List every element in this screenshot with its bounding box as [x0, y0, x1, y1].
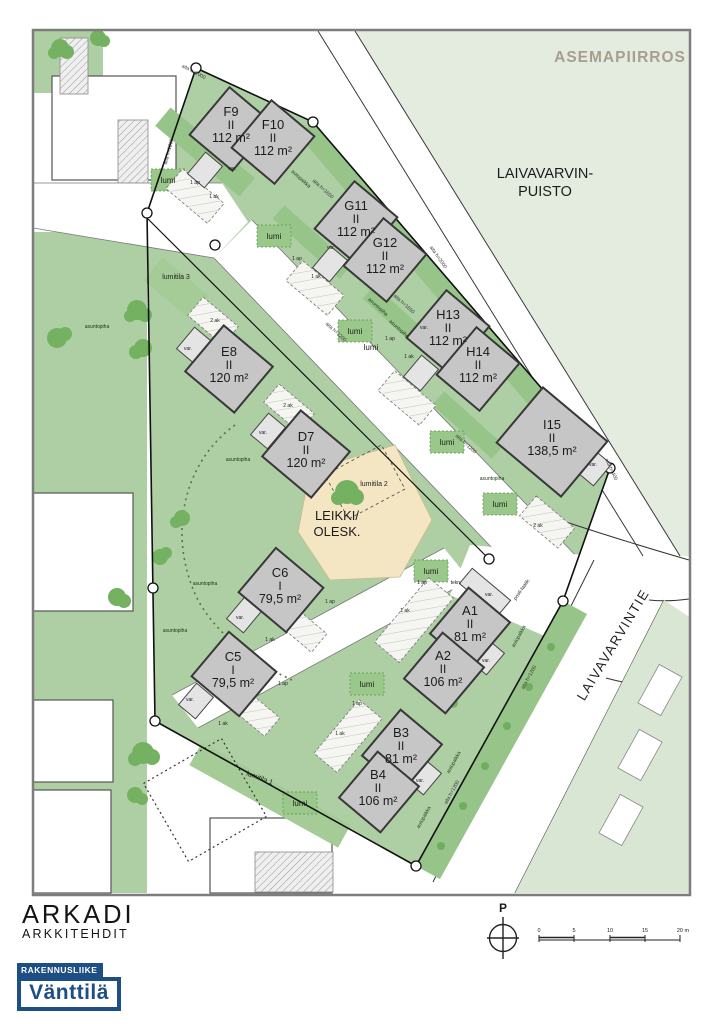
svg-text:79,5 m²: 79,5 m²: [212, 676, 254, 690]
svg-text:1 ak: 1 ak: [218, 721, 228, 727]
svg-text:1 ak: 1 ak: [209, 194, 219, 200]
svg-text:asuntopiha: asuntopiha: [480, 476, 505, 482]
svg-text:1 ap: 1 ap: [190, 180, 200, 186]
svg-text:asuntopiha: asuntopiha: [163, 628, 188, 634]
svg-text:81 m²: 81 m²: [454, 630, 486, 644]
svg-text:II: II: [270, 131, 277, 145]
svg-text:I15: I15: [543, 417, 561, 432]
svg-text:E8: E8: [221, 344, 237, 359]
svg-text:II: II: [303, 443, 310, 457]
svg-text:var.: var.: [259, 430, 267, 436]
architect-subtitle: ARKKITEHDIT: [22, 927, 137, 941]
svg-text:A1: A1: [462, 603, 478, 618]
svg-text:asuntopiha: asuntopiha: [85, 324, 110, 330]
svg-text:1 ak: 1 ak: [311, 274, 321, 280]
svg-text:lumi: lumi: [161, 176, 176, 185]
svg-text:10: 10: [607, 928, 613, 934]
svg-text:H14: H14: [466, 344, 490, 359]
svg-text:2 ak: 2 ak: [210, 318, 220, 324]
svg-text:var.: var.: [327, 245, 335, 251]
architect-name: ARKADI: [22, 901, 135, 927]
architect-logo: ARKADI ARKKITEHDIT: [22, 901, 137, 941]
svg-text:112 m²: 112 m²: [459, 371, 497, 385]
svg-text:106 m²: 106 m²: [359, 794, 398, 808]
svg-text:II: II: [375, 781, 382, 795]
svg-text:lumi: lumi: [348, 327, 363, 336]
svg-text:120 m²: 120 m²: [287, 456, 326, 470]
svg-text:II: II: [398, 739, 405, 753]
svg-text:var.: var.: [482, 658, 490, 664]
svg-text:II: II: [353, 212, 360, 226]
svg-text:5: 5: [572, 928, 575, 934]
north-arrow: P: [487, 901, 519, 959]
svg-text:var.: var.: [186, 697, 194, 703]
svg-text:lumi: lumi: [440, 438, 455, 447]
svg-text:106 m²: 106 m²: [424, 675, 463, 689]
builder-name-box: Vänttilä: [17, 977, 121, 1011]
svg-text:var.: var.: [416, 778, 424, 784]
svg-text:120 m²: 120 m²: [210, 371, 249, 385]
svg-text:II: II: [467, 617, 474, 631]
svg-text:II: II: [549, 431, 556, 445]
svg-text:I: I: [231, 663, 234, 677]
svg-text:var.: var.: [236, 615, 244, 621]
svg-text:B4: B4: [370, 767, 386, 782]
svg-text:112 m²: 112 m²: [212, 131, 250, 145]
svg-text:lumi: lumi: [293, 799, 308, 808]
play-area-label: LEIKKI/ OLESK.: [314, 508, 361, 539]
svg-text:C6: C6: [272, 565, 289, 580]
svg-text:lumi: lumi: [424, 567, 439, 576]
site-plan-page: { "page": { "title": "ASEMAPIIRROS" }, "…: [0, 0, 724, 1024]
svg-text:20 m: 20 m: [677, 928, 690, 934]
svg-text:1 ak: 1 ak: [335, 731, 345, 737]
svg-text:asuntopiha: asuntopiha: [193, 581, 218, 587]
svg-text:1 ap: 1 ap: [385, 336, 395, 342]
svg-text:79,5 m²: 79,5 m²: [259, 592, 301, 606]
svg-text:lumitila 3: lumitila 3: [162, 274, 190, 281]
svg-text:LEIKKI/: LEIKKI/: [315, 508, 359, 523]
svg-text:B3: B3: [393, 725, 409, 740]
svg-text:1 ap: 1 ap: [325, 599, 335, 605]
svg-text:lumi: lumi: [364, 343, 379, 352]
svg-text:1 ak: 1 ak: [404, 354, 414, 360]
svg-text:OLESK.: OLESK.: [314, 524, 361, 539]
svg-text:D7: D7: [298, 429, 315, 444]
svg-text:var.: var.: [485, 592, 493, 598]
svg-text:var.: var.: [184, 346, 192, 352]
svg-text:112 m²: 112 m²: [366, 262, 404, 276]
svg-text:2 ak: 2 ak: [533, 523, 543, 529]
svg-text:lumitila 2: lumitila 2: [360, 481, 388, 488]
svg-text:F10: F10: [262, 117, 284, 132]
svg-text:var.: var.: [589, 462, 597, 468]
svg-text:I: I: [278, 579, 281, 593]
svg-text:II: II: [475, 358, 482, 372]
svg-text:C5: C5: [225, 649, 242, 664]
svg-text:138,5 m²: 138,5 m²: [527, 444, 576, 458]
svg-text:II: II: [440, 662, 447, 676]
svg-text:II: II: [226, 358, 233, 372]
svg-text:15: 15: [642, 928, 648, 934]
svg-text:2 ak: 2 ak: [283, 403, 293, 409]
svg-text:II: II: [228, 118, 235, 132]
svg-text:var.: var.: [420, 325, 428, 331]
svg-text:1 ap: 1 ap: [352, 701, 362, 707]
svg-text:G11: G11: [344, 198, 368, 213]
svg-text:lumi: lumi: [493, 500, 508, 509]
svg-text:PUISTO: PUISTO: [518, 184, 572, 200]
svg-text:A2: A2: [435, 648, 451, 663]
builder-logo: RAKENNUSLIIKE Vänttilä: [17, 960, 121, 1011]
svg-text:II: II: [445, 321, 452, 335]
svg-text:112 m²: 112 m²: [429, 334, 467, 348]
svg-text:H13: H13: [436, 307, 460, 322]
svg-text:II: II: [382, 249, 389, 263]
svg-text:lumi: lumi: [360, 680, 375, 689]
svg-text:1 ak: 1 ak: [400, 608, 410, 614]
svg-text:81 m²: 81 m²: [385, 752, 417, 766]
svg-text:asuntopiha: asuntopiha: [226, 457, 251, 463]
svg-text:112 m²: 112 m²: [337, 225, 375, 239]
svg-text:1 ak: 1 ak: [265, 637, 275, 643]
svg-text:F9: F9: [223, 104, 238, 119]
svg-text:112 m²: 112 m²: [254, 144, 292, 158]
builder-name: Vänttilä: [29, 981, 109, 1004]
drawing-title: ASEMAPIIRROS: [554, 49, 686, 66]
svg-text:1 ap: 1 ap: [278, 681, 288, 687]
svg-text:var.: var.: [228, 166, 236, 172]
svg-text:P: P: [499, 901, 507, 915]
scale-bar: 0 5 10 15 20 m: [537, 928, 689, 942]
svg-text:lumi: lumi: [267, 232, 282, 241]
svg-text:1 ap: 1 ap: [292, 256, 302, 262]
svg-text:1 ap: 1 ap: [417, 580, 427, 586]
svg-text:0: 0: [537, 928, 540, 934]
svg-text:LAIVAVARVIN-: LAIVAVARVIN-: [497, 166, 594, 182]
site-plan-drawing: F9II112 m² F10II112 m² G11II112 m² G12II…: [0, 0, 724, 1024]
builder-banner: RAKENNUSLIIKE: [17, 963, 103, 977]
svg-text:G12: G12: [373, 235, 398, 250]
svg-text:tekn.: tekn.: [451, 580, 462, 586]
